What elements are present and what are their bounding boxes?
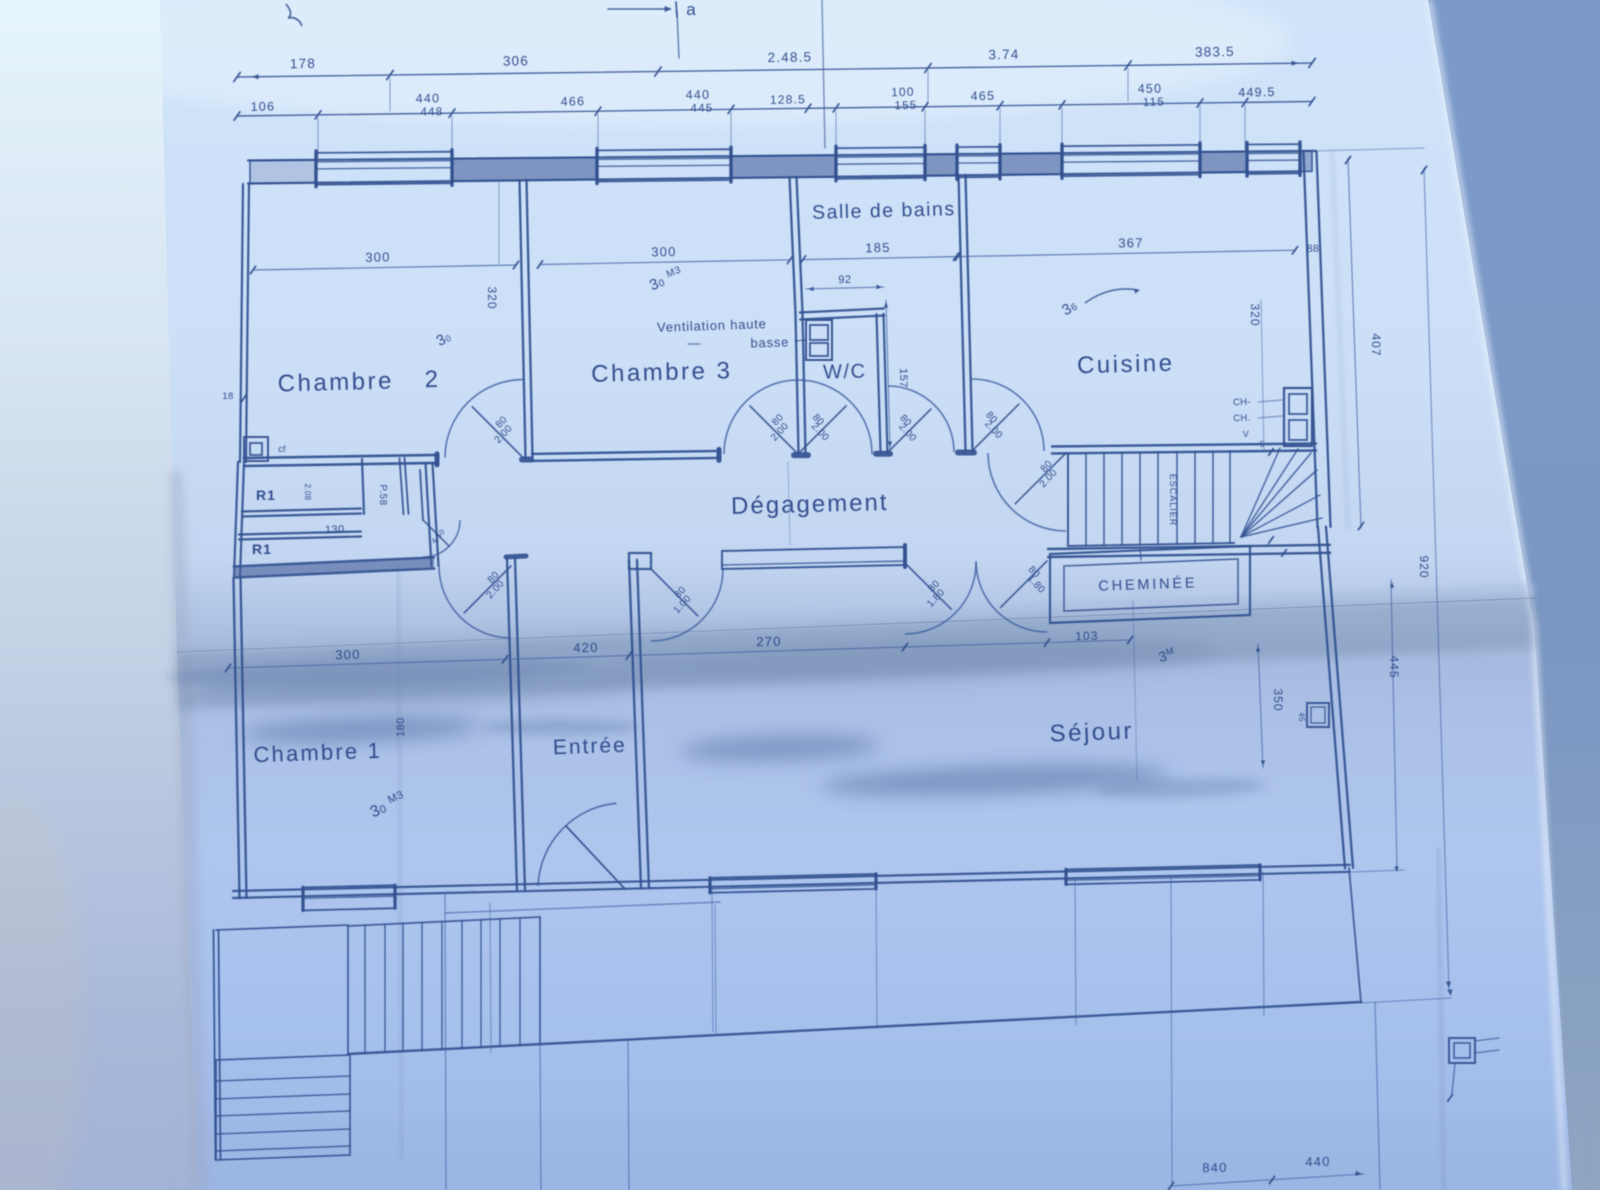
svg-text:a: a bbox=[686, 0, 696, 19]
svg-text:445: 445 bbox=[690, 103, 713, 115]
svg-text:Entrée: Entrée bbox=[552, 734, 627, 760]
svg-text:920: 920 bbox=[1417, 555, 1431, 578]
svg-text:450: 450 bbox=[1138, 81, 1163, 95]
svg-text:cf: cf bbox=[278, 444, 286, 454]
svg-text:128.5: 128.5 bbox=[770, 92, 806, 107]
svg-text:R1: R1 bbox=[252, 541, 272, 557]
svg-text:Chambre 3: Chambre 3 bbox=[591, 357, 733, 388]
svg-text:Salle de bains: Salle de bains bbox=[812, 198, 956, 224]
svg-text:367: 367 bbox=[1118, 235, 1144, 250]
svg-text:306: 306 bbox=[503, 53, 529, 68]
svg-text:157: 157 bbox=[897, 368, 909, 388]
svg-text:320: 320 bbox=[485, 286, 499, 309]
svg-text:300: 300 bbox=[335, 647, 361, 662]
svg-text:CH-: CH- bbox=[1233, 397, 1251, 409]
svg-text:18: 18 bbox=[222, 391, 233, 402]
svg-text:Chambre: Chambre bbox=[277, 367, 394, 397]
svg-text:CH.: CH. bbox=[1233, 413, 1251, 425]
svg-text:466: 466 bbox=[561, 94, 586, 108]
svg-text:2.48.5: 2.48.5 bbox=[767, 49, 812, 65]
svg-text:45: 45 bbox=[1297, 712, 1306, 722]
svg-text:350: 350 bbox=[1271, 688, 1285, 711]
svg-text:V: V bbox=[1243, 429, 1250, 439]
svg-text:300: 300 bbox=[651, 244, 677, 259]
svg-text:5: 5 bbox=[1260, 440, 1265, 449]
svg-text:103: 103 bbox=[1075, 629, 1099, 643]
svg-text:basse: basse bbox=[750, 334, 789, 350]
svg-text:407: 407 bbox=[1369, 333, 1383, 356]
svg-text:440: 440 bbox=[686, 88, 711, 102]
svg-text:465: 465 bbox=[971, 89, 996, 103]
svg-text:2.08: 2.08 bbox=[303, 484, 312, 501]
svg-text:88: 88 bbox=[1307, 243, 1319, 255]
svg-text:445: 445 bbox=[1387, 655, 1401, 678]
svg-text:300: 300 bbox=[365, 249, 391, 264]
svg-text:3.74: 3.74 bbox=[988, 47, 1019, 63]
svg-text:270: 270 bbox=[756, 634, 782, 649]
svg-text:449.5: 449.5 bbox=[1238, 85, 1276, 100]
svg-text:R1: R1 bbox=[256, 487, 276, 503]
svg-text:CHEMINÉE: CHEMINÉE bbox=[1098, 574, 1197, 594]
svg-text:448: 448 bbox=[420, 106, 443, 118]
svg-text:383.5: 383.5 bbox=[1195, 44, 1235, 60]
svg-text:100: 100 bbox=[891, 85, 915, 99]
svg-text:180: 180 bbox=[395, 717, 407, 737]
svg-text:106: 106 bbox=[251, 99, 276, 113]
svg-text:ESCALIER: ESCALIER bbox=[1168, 474, 1178, 527]
svg-text:Dégagement: Dégagement bbox=[731, 489, 889, 520]
svg-text:440: 440 bbox=[416, 91, 441, 105]
svg-text:Cuisine: Cuisine bbox=[1077, 350, 1175, 380]
svg-text:178: 178 bbox=[290, 56, 316, 71]
svg-text:155: 155 bbox=[894, 100, 917, 112]
svg-text:185: 185 bbox=[865, 240, 891, 255]
svg-text:840: 840 bbox=[1202, 1160, 1228, 1175]
svg-text:P.58: P.58 bbox=[377, 484, 388, 505]
svg-text:W/C: W/C bbox=[823, 360, 867, 383]
svg-text:92: 92 bbox=[838, 274, 851, 286]
svg-text:115: 115 bbox=[1143, 97, 1165, 109]
svg-text:420: 420 bbox=[573, 640, 599, 655]
svg-text:Séjour: Séjour bbox=[1049, 718, 1134, 748]
svg-text:2: 2 bbox=[424, 366, 439, 393]
svg-text:Chambre 1: Chambre 1 bbox=[253, 738, 382, 767]
svg-text:320: 320 bbox=[1248, 303, 1262, 326]
svg-text:440: 440 bbox=[1305, 1154, 1331, 1169]
svg-text:130: 130 bbox=[325, 524, 345, 537]
